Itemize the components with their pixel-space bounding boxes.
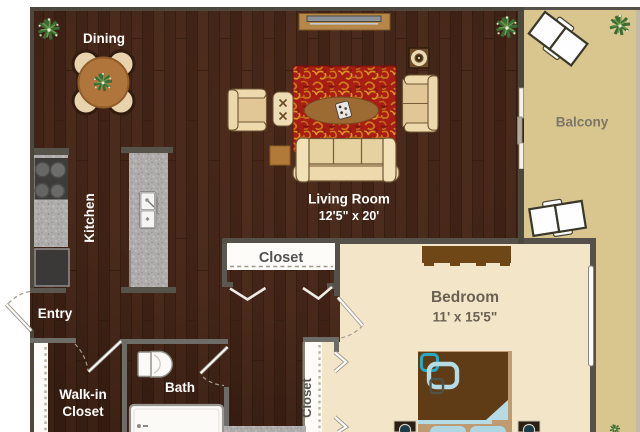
svg-text:Bath: Bath bbox=[165, 380, 195, 395]
svg-text:Entry: Entry bbox=[38, 306, 73, 321]
svg-text:Closet: Closet bbox=[299, 377, 314, 417]
svg-text:Walk-in: Walk-in bbox=[59, 387, 107, 402]
svg-text:12'5" x 20': 12'5" x 20' bbox=[319, 209, 380, 223]
svg-text:Kitchen: Kitchen bbox=[82, 193, 97, 243]
svg-text:11' x 15'5": 11' x 15'5" bbox=[433, 310, 498, 325]
svg-text:Dining: Dining bbox=[83, 31, 125, 46]
svg-text:Closet: Closet bbox=[62, 404, 104, 419]
svg-text:Closet: Closet bbox=[259, 250, 303, 266]
svg-text:Bedroom: Bedroom bbox=[431, 289, 499, 306]
svg-text:Living Room: Living Room bbox=[308, 192, 390, 207]
svg-text:Balcony: Balcony bbox=[556, 115, 609, 130]
